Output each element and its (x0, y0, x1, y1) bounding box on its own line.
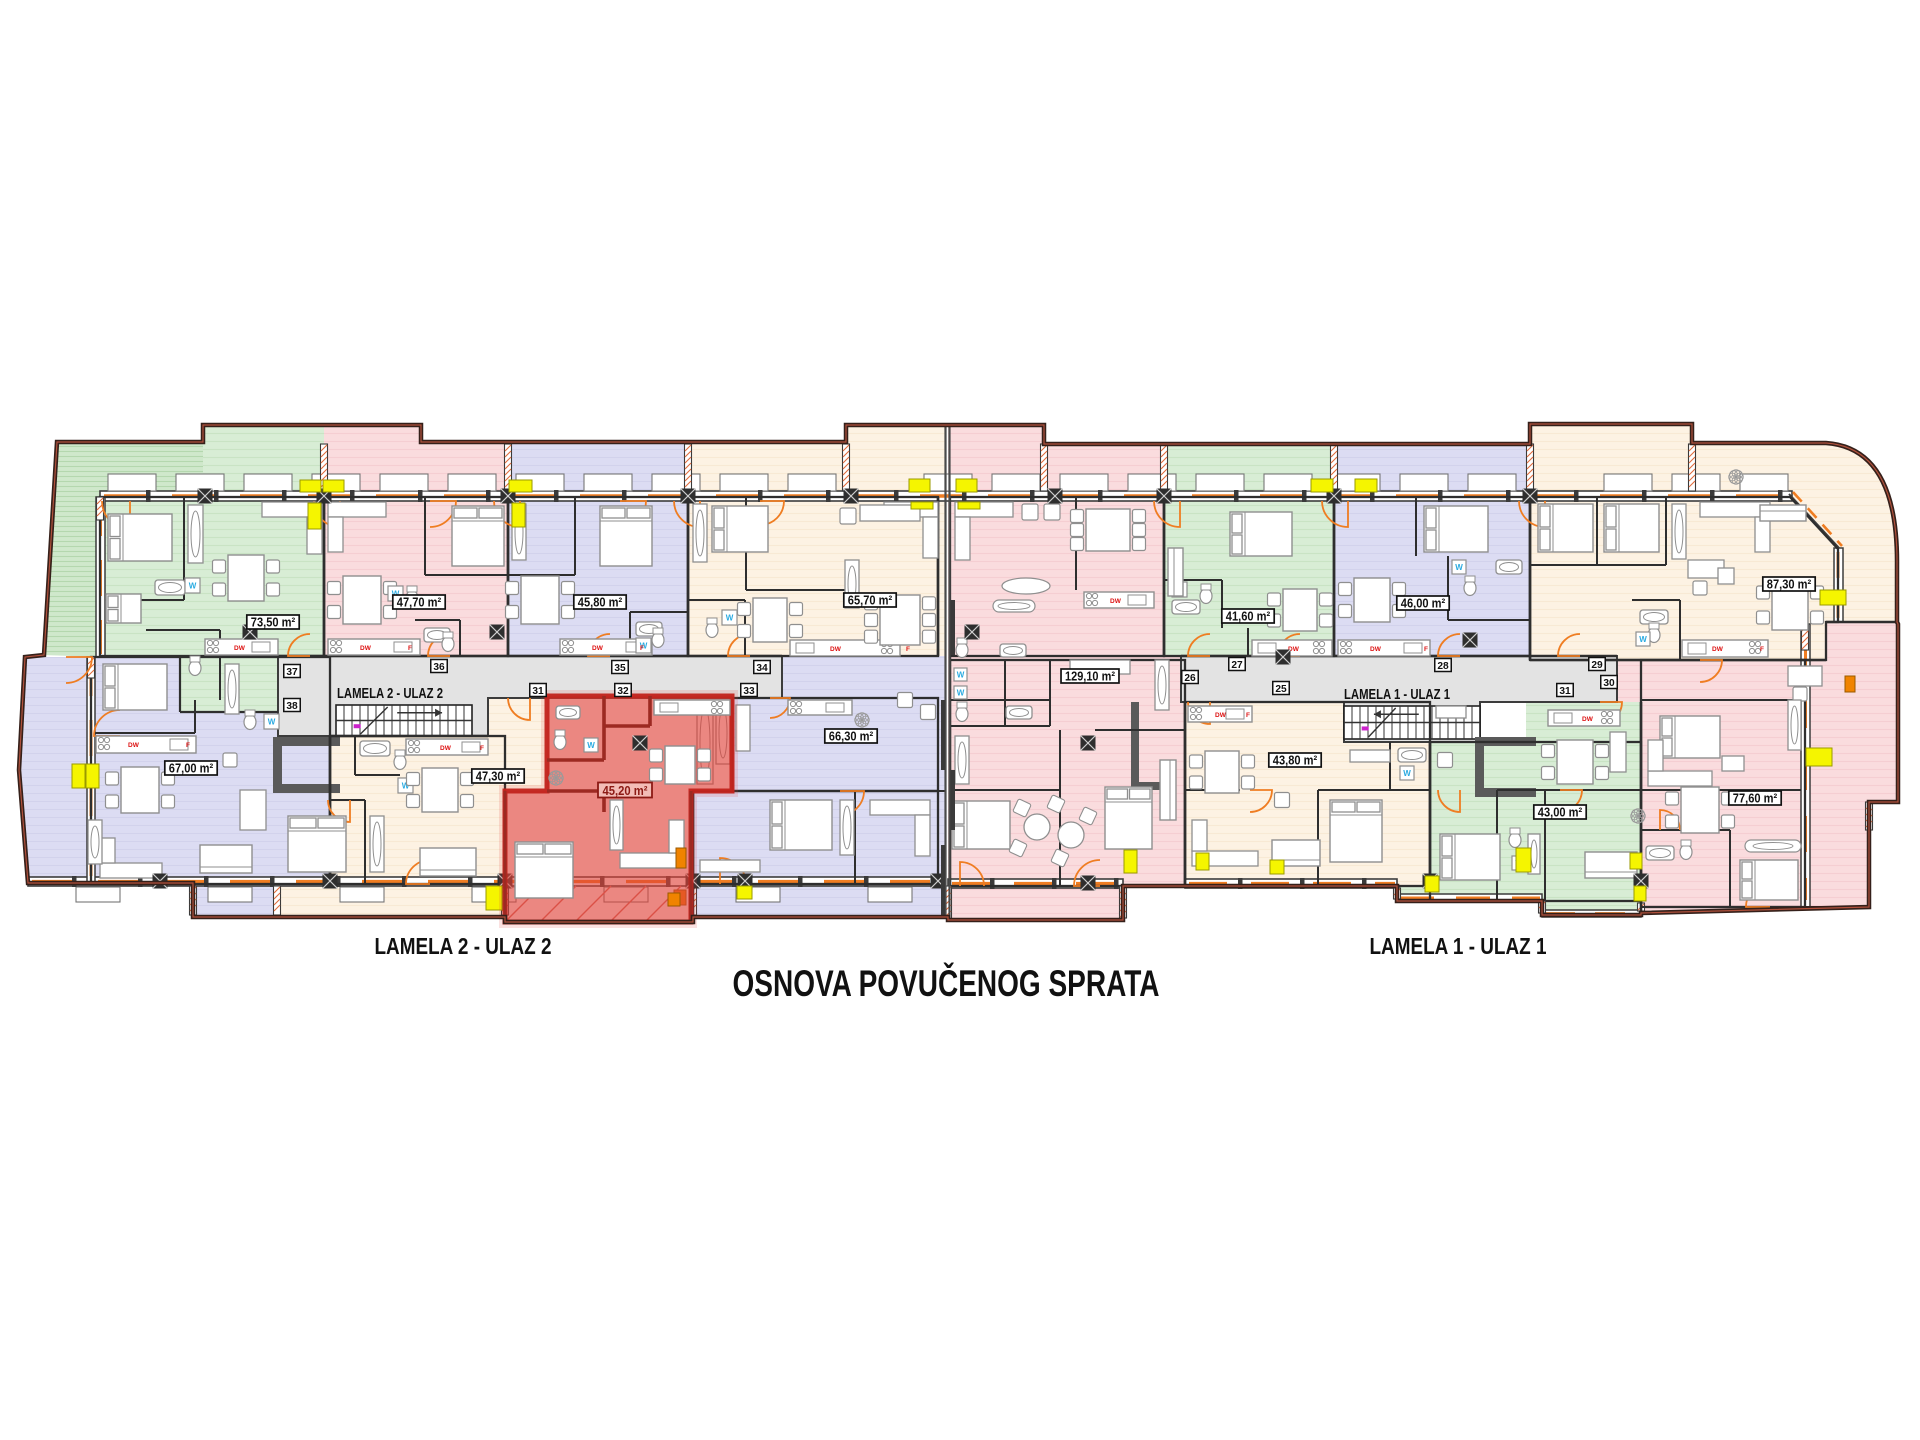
svg-text:45,80 m²: 45,80 m² (578, 595, 623, 610)
svg-text:OSNOVA POVUČENOG SPRATA: OSNOVA POVUČENOG SPRATA (733, 962, 1160, 1004)
svg-text:F: F (1760, 646, 1764, 653)
svg-text:F: F (408, 645, 412, 652)
svg-text:W: W (957, 689, 965, 698)
svg-text:W: W (726, 614, 734, 623)
svg-text:33: 33 (743, 686, 755, 697)
svg-text:W: W (1455, 563, 1463, 572)
svg-text:29: 29 (1591, 660, 1603, 671)
svg-text:26: 26 (1184, 673, 1196, 684)
svg-text:W: W (189, 582, 197, 591)
svg-text:DW: DW (1110, 598, 1122, 605)
svg-text:25: 25 (1275, 684, 1287, 695)
svg-text:W: W (268, 718, 276, 727)
svg-text:DW: DW (1215, 712, 1227, 719)
svg-text:47,70 m²: 47,70 m² (397, 595, 442, 610)
svg-text:F: F (1424, 646, 1428, 653)
svg-text:73,50 m²: 73,50 m² (251, 615, 296, 630)
svg-text:DW: DW (1712, 646, 1724, 653)
svg-text:DW: DW (360, 645, 372, 652)
svg-text:W: W (587, 741, 595, 750)
svg-text:67,00 m²: 67,00 m² (169, 761, 214, 776)
svg-text:31: 31 (532, 686, 544, 697)
svg-text:43,00 m²: 43,00 m² (1538, 805, 1583, 820)
svg-text:28: 28 (1437, 661, 1449, 672)
svg-text:31: 31 (1559, 686, 1571, 697)
svg-text:DW: DW (1370, 646, 1382, 653)
svg-text:32: 32 (617, 686, 629, 697)
svg-text:F: F (906, 646, 910, 653)
svg-text:38: 38 (286, 701, 298, 712)
svg-text:F: F (1246, 712, 1250, 719)
svg-text:41,60 m²: 41,60 m² (1226, 609, 1271, 624)
svg-text:34: 34 (756, 663, 768, 674)
svg-text:LAMELA 1 - ULAZ 1: LAMELA 1 - ULAZ 1 (1370, 933, 1547, 959)
svg-text:LAMELA 1 - ULAZ 1: LAMELA 1 - ULAZ 1 (1344, 686, 1450, 703)
svg-text:43,80 m²: 43,80 m² (1273, 753, 1318, 768)
svg-text:F: F (186, 742, 190, 749)
svg-text:30: 30 (1603, 678, 1615, 689)
svg-text:65,70 m²: 65,70 m² (848, 593, 893, 608)
svg-text:46,00 m²: 46,00 m² (1401, 596, 1446, 611)
svg-text:F: F (480, 745, 484, 752)
svg-text:27: 27 (1231, 660, 1243, 671)
svg-text:37: 37 (286, 667, 298, 678)
svg-text:45,20 m²: 45,20 m² (603, 783, 649, 798)
svg-text:77,60 m²: 77,60 m² (1733, 791, 1778, 806)
svg-text:W: W (1639, 635, 1647, 644)
svg-text:LAMELA 2 - ULAZ 2: LAMELA 2 - ULAZ 2 (375, 933, 552, 959)
svg-text:DW: DW (1582, 716, 1594, 723)
svg-text:LAMELA 2 - ULAZ 2: LAMELA 2 - ULAZ 2 (337, 685, 443, 702)
svg-text:W: W (957, 671, 965, 680)
svg-text:35: 35 (614, 663, 626, 674)
svg-text:W: W (1403, 769, 1411, 778)
svg-text:DW: DW (440, 745, 452, 752)
svg-text:DW: DW (830, 646, 842, 653)
svg-text:DW: DW (234, 645, 246, 652)
svg-text:87,30 m²: 87,30 m² (1767, 577, 1812, 592)
svg-text:129,10 m²: 129,10 m² (1065, 669, 1116, 684)
svg-text:DW: DW (128, 742, 140, 749)
svg-text:F: F (640, 645, 644, 652)
svg-text:47,30 m²: 47,30 m² (476, 769, 521, 784)
svg-text:36: 36 (433, 662, 445, 673)
svg-text:66,30 m²: 66,30 m² (829, 729, 874, 744)
svg-text:DW: DW (592, 645, 604, 652)
